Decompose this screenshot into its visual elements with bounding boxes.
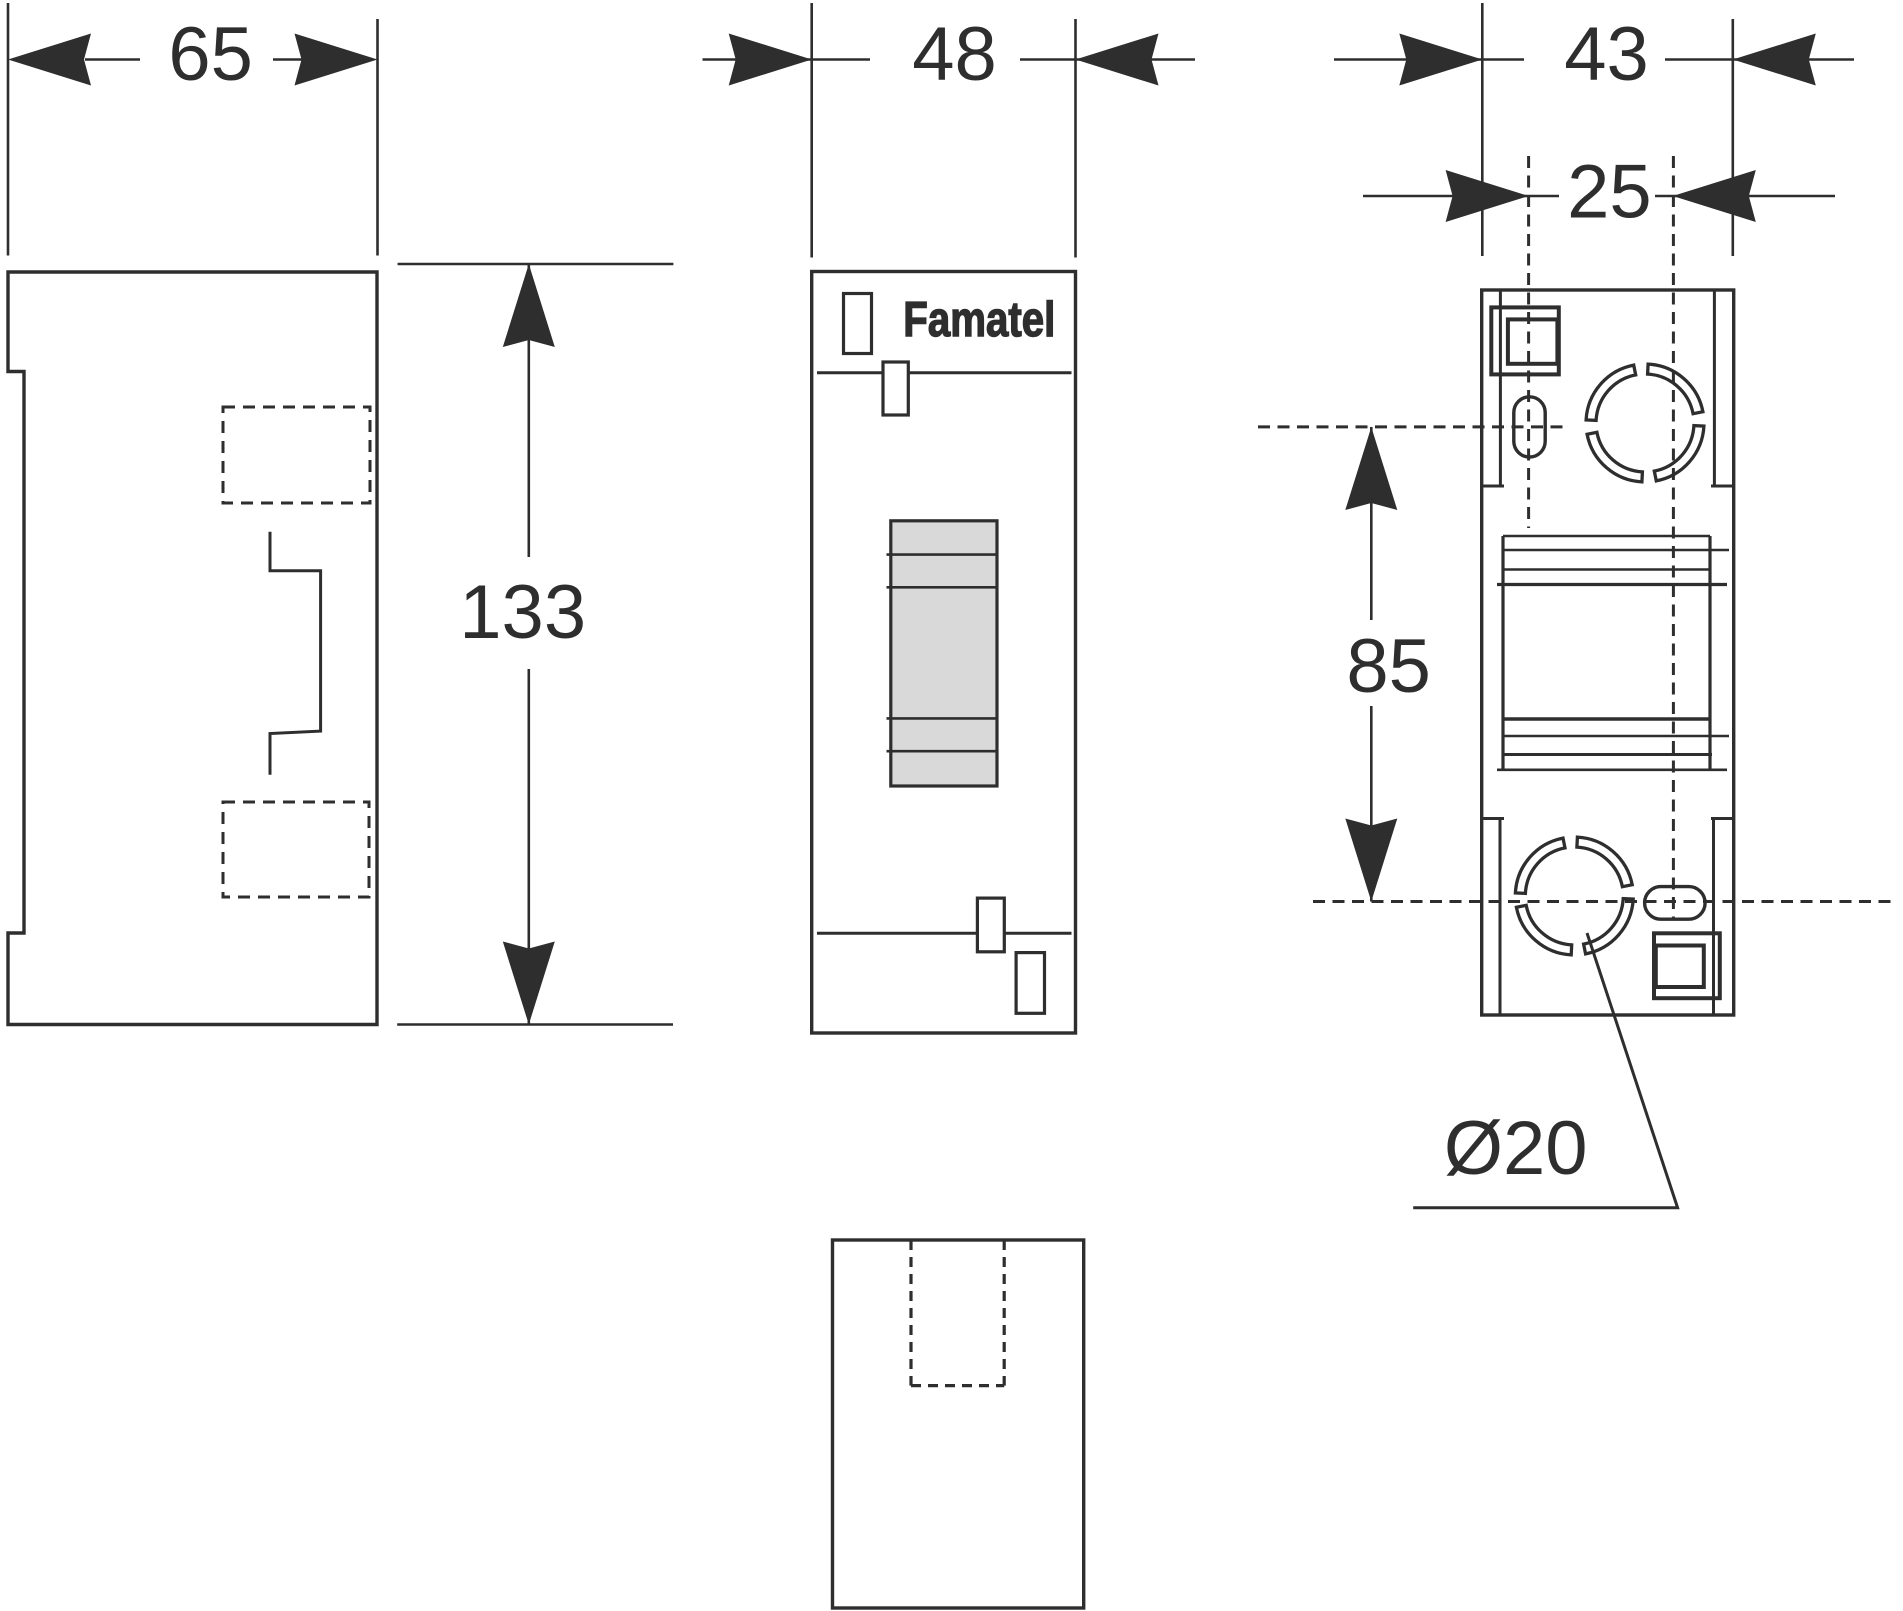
svg-text:133: 133 xyxy=(459,570,586,655)
svg-text:48: 48 xyxy=(912,12,997,97)
svg-text:85: 85 xyxy=(1346,624,1431,709)
svg-text:25: 25 xyxy=(1567,150,1652,235)
svg-text:65: 65 xyxy=(168,12,253,97)
svg-text:Ø20: Ø20 xyxy=(1444,1106,1588,1191)
svg-text:43: 43 xyxy=(1564,12,1649,97)
svg-text:Famatel: Famatel xyxy=(903,293,1055,347)
